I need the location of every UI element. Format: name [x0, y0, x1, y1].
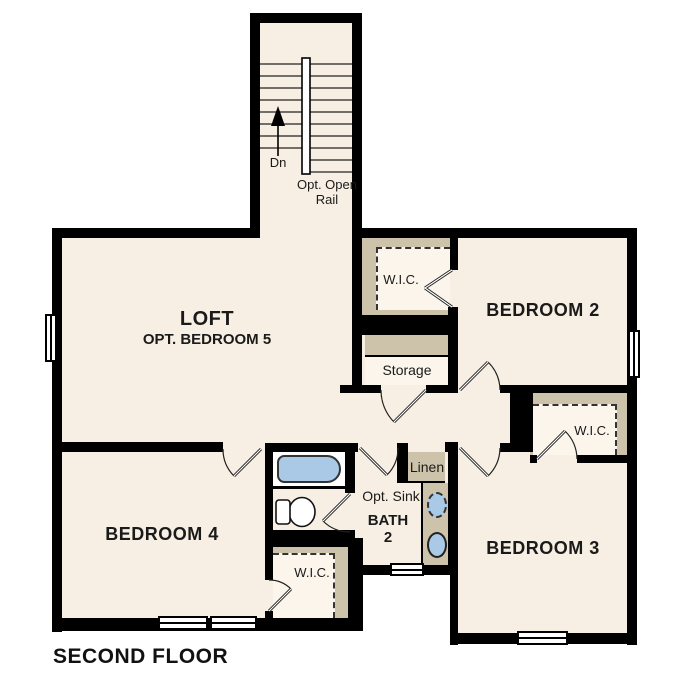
wall: [250, 13, 362, 23]
wall: [250, 13, 260, 238]
page-title: SECOND FLOOR: [53, 645, 228, 669]
rail-note-group: Opt. Open Rail: [287, 178, 367, 208]
wic-bedroom2-label: W.I.C.: [371, 273, 431, 288]
wall: [265, 611, 273, 621]
wall: [445, 442, 458, 452]
wall: [265, 547, 273, 580]
bedroom3-lower-floor: [450, 575, 628, 633]
loft-option-label: OPT. BEDROOM 5: [87, 331, 327, 348]
rail-note-line1: Opt. Open: [287, 178, 367, 193]
wall: [426, 385, 458, 393]
wall: [340, 385, 381, 393]
wic-bedroom4-label: W.I.C.: [282, 566, 342, 581]
wall: [348, 538, 363, 631]
loft-label-group: LOFT OPT. BEDROOM 5: [87, 308, 327, 348]
bath2-label-group: BATH 2: [358, 512, 418, 547]
storage-label: Storage: [367, 362, 447, 378]
bedroom3-label: BEDROOM 3: [448, 538, 638, 559]
window-bedroom4-right: [210, 616, 257, 630]
wall: [345, 443, 355, 493]
bath2-label-line2: 2: [358, 529, 418, 546]
wall: [510, 390, 533, 443]
window-bedroom3: [517, 631, 568, 645]
wall: [352, 228, 637, 238]
bathtub: [277, 455, 341, 483]
wall: [265, 530, 355, 547]
wall: [500, 443, 533, 452]
wall: [530, 455, 537, 463]
linen-label: Linen: [397, 459, 457, 475]
wall: [627, 228, 637, 645]
wic-bedroom4-interior: [273, 553, 335, 618]
rail-note-line2: Rail: [287, 193, 367, 208]
wall: [52, 228, 258, 238]
wall: [265, 443, 273, 538]
window-loft-left: [45, 314, 57, 362]
bedroom4-label: BEDROOM 4: [62, 524, 262, 545]
window-bedroom2-right: [628, 330, 640, 378]
bedroom2-label: BEDROOM 2: [448, 300, 638, 321]
stairs-down-label: Dn: [258, 156, 298, 171]
wall: [52, 442, 223, 452]
window-bedroom4-left: [158, 616, 208, 630]
opt-sink-label: Opt. Sink: [346, 488, 436, 504]
loft-label: LOFT: [87, 308, 327, 331]
storage-shelf: [365, 335, 450, 357]
bath2-label-line1: BATH: [358, 512, 418, 529]
window-bath2: [390, 563, 424, 576]
wic-bedroom3-label: W.I.C.: [562, 424, 622, 439]
wall: [360, 315, 458, 335]
floor-plan: LOFT OPT. BEDROOM 5 BEDROOM 2 BEDROOM 3 …: [0, 0, 687, 687]
wall: [450, 230, 458, 270]
wall: [52, 228, 62, 632]
sink-basin: [427, 532, 447, 558]
tub-toilet-divider-wall: [273, 486, 345, 489]
wall: [577, 455, 627, 463]
